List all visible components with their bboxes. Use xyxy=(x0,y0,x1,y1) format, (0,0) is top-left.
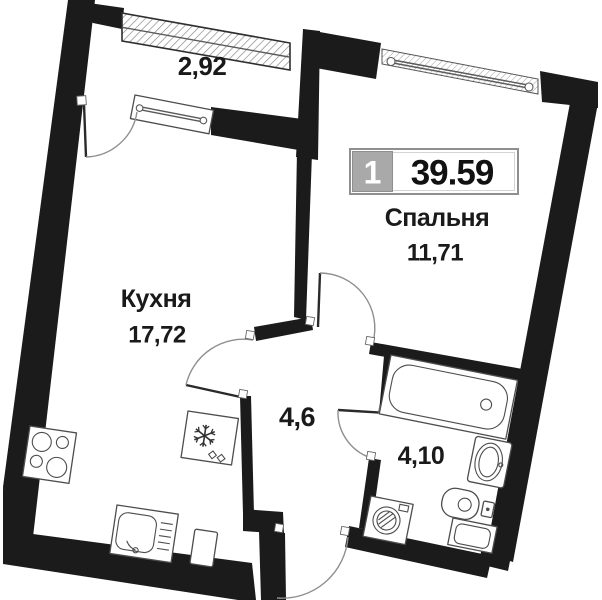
hallway-area-label: 4,6 xyxy=(279,402,316,432)
entrance-door-arc xyxy=(277,537,348,598)
washer-body xyxy=(363,496,413,545)
kitchen-name-label: Кухня xyxy=(121,285,192,313)
sill-end-left xyxy=(136,104,144,112)
balcony-sill-window xyxy=(130,95,213,134)
washing-machine xyxy=(363,496,413,545)
sill-end-right xyxy=(200,117,208,125)
jamb-notch xyxy=(366,451,375,460)
kitchen-cabinet xyxy=(190,529,218,567)
bedroom-window-end-right xyxy=(525,83,533,91)
bedroom-area-label: 11,71 xyxy=(407,240,463,267)
wall-hallway-top xyxy=(254,317,313,341)
toilet-bowl xyxy=(439,486,481,522)
sink-counter xyxy=(110,505,179,563)
jamb-notch xyxy=(365,336,374,345)
walls xyxy=(3,0,598,600)
balcony-area-label: 2,92 xyxy=(178,51,227,81)
floor-plan: 1 39.59 2,92 Спальня 11,71 Кухня 17,72 4… xyxy=(0,0,602,600)
jamb-notch xyxy=(305,316,314,325)
bedroom-door-leaf xyxy=(318,273,320,327)
wall-bedroom-left xyxy=(294,150,312,320)
jamb-notch xyxy=(245,330,254,339)
bathroom-cabinet xyxy=(448,518,497,553)
sill-frame xyxy=(130,95,213,134)
wall-junction-column xyxy=(296,29,320,160)
wall-entry-pier xyxy=(259,531,286,600)
floor-plan-svg: 1 39.59 2,92 Спальня 11,71 Кухня 17,72 4… xyxy=(0,0,602,600)
toilet xyxy=(439,486,496,525)
wall-kitchen-hall xyxy=(240,396,254,514)
jamb-notch xyxy=(238,389,247,398)
kitchen-sink xyxy=(110,505,179,563)
bedroom-door-arc xyxy=(320,273,375,342)
fridge xyxy=(181,411,238,465)
bedroom-window-end-left xyxy=(387,58,395,66)
fridge-body xyxy=(181,411,238,465)
balcony-door-arc xyxy=(86,112,137,157)
bathroom-area-label: 4,10 xyxy=(398,442,445,470)
bedroom-name-label: Спальня xyxy=(385,204,490,232)
stove xyxy=(22,426,76,483)
wall-balcony-partition xyxy=(211,107,310,152)
bedroom-window-band xyxy=(382,49,538,94)
jamb-notch xyxy=(274,523,283,532)
jamb-notch xyxy=(77,96,87,106)
cabinet-body xyxy=(190,529,218,567)
wall-corner-top-right xyxy=(540,71,598,108)
balcony-door-leaf xyxy=(84,104,86,157)
kitchen-door-leaf xyxy=(186,385,245,398)
jamb-notch xyxy=(340,526,349,535)
area-badge: 1 39.59 xyxy=(350,149,518,194)
badge-room-count: 1 xyxy=(364,155,382,191)
bathroom-sink xyxy=(467,436,512,488)
kitchen-area-label: 17,72 xyxy=(128,322,186,349)
kitchen-door-arc xyxy=(186,339,253,385)
badge-total-area: 39.59 xyxy=(411,154,494,193)
